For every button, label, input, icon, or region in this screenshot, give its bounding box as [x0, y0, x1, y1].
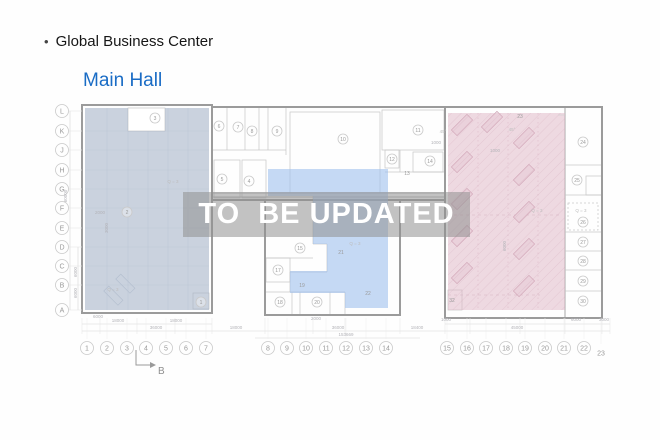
col-label-12: 12 — [340, 342, 353, 355]
room-number-1: 1 — [196, 297, 206, 307]
svg-text:F: F — [60, 206, 64, 213]
col-label-8: 8 — [262, 342, 275, 355]
row-label-A: A — [56, 304, 69, 317]
room-number-13: 13 — [404, 171, 410, 177]
section-marker-label: B — [158, 366, 165, 377]
dimension-label: 6000 — [571, 317, 582, 322]
svg-text:E: E — [60, 226, 65, 233]
dimension-label: 18000 — [112, 318, 125, 323]
svg-text:13: 13 — [362, 346, 370, 353]
area-label: Q = 3 — [575, 208, 587, 213]
room-number-20: 20 — [312, 297, 322, 307]
page-title: Global Business Center — [56, 33, 214, 50]
page-header: • Global Business Center — [44, 33, 213, 50]
svg-text:23: 23 — [597, 351, 605, 358]
room-number-24: 24 — [578, 137, 588, 147]
room-number-18: 18 — [275, 297, 285, 307]
watermark: TO BE UPDATED — [183, 192, 470, 237]
room-number-10: 10 — [338, 134, 348, 144]
col-label-18: 18 — [500, 342, 513, 355]
col-label-22: 22 — [578, 342, 591, 355]
svg-text:10: 10 — [340, 137, 346, 143]
svg-text:27: 27 — [580, 240, 586, 246]
svg-text:14: 14 — [382, 346, 390, 353]
room-number-6: 6 — [214, 121, 224, 131]
zone-middle — [268, 169, 388, 308]
room-number-15: 15 — [295, 243, 305, 253]
svg-text:3: 3 — [125, 346, 129, 353]
dimension-label: 6000 — [73, 287, 78, 298]
svg-text:10: 10 — [302, 346, 310, 353]
svg-text:15: 15 — [443, 346, 451, 353]
row-label-K: K — [56, 125, 69, 138]
room-number-21: 21 — [338, 250, 344, 256]
col-label-13: 13 — [360, 342, 373, 355]
dimension-label: 153669 — [338, 332, 354, 337]
col-label-5: 5 — [160, 342, 173, 355]
dimension-label: 2000 — [311, 316, 322, 321]
dimension-label: 18000 — [230, 325, 243, 330]
col-label-20: 20 — [539, 342, 552, 355]
svg-text:1: 1 — [85, 346, 89, 353]
svg-text:11: 11 — [415, 128, 420, 134]
room-number-25: 25 — [572, 175, 582, 185]
area-label: 45° — [509, 127, 516, 132]
svg-text:K: K — [60, 129, 65, 136]
col-label-10: 10 — [300, 342, 313, 355]
svg-text:26: 26 — [580, 220, 586, 226]
dimension-label: 6000 — [93, 314, 104, 319]
col-label-14: 14 — [380, 342, 393, 355]
dimension-label: 18400 — [411, 325, 424, 330]
svg-text:5: 5 — [164, 346, 168, 353]
room-number-9: 9 — [272, 126, 282, 136]
svg-text:D: D — [59, 245, 64, 252]
dimension-label: 3000 — [104, 222, 109, 233]
dimension-label: 3000 — [599, 317, 610, 322]
col-label-11: 11 — [320, 342, 333, 355]
svg-text:30: 30 — [580, 299, 586, 305]
svg-text:19: 19 — [521, 346, 529, 353]
watermark-text: TO BE UPDATED — [198, 198, 454, 231]
row-label-E: E — [56, 222, 69, 235]
col-label-15: 15 — [441, 342, 454, 355]
section-marker: B — [136, 350, 165, 377]
room-number-8: 8 — [247, 126, 257, 136]
hall-title: Main Hall — [83, 70, 162, 92]
col-label-17: 17 — [480, 342, 493, 355]
svg-text:H: H — [59, 168, 64, 175]
svg-text:2: 2 — [126, 210, 129, 216]
room-number-26: 26 — [578, 217, 588, 227]
room-number-29: 29 — [578, 276, 588, 286]
room-number-27: 27 — [578, 237, 588, 247]
row-label-F: F — [56, 202, 69, 215]
dimension-label: 36000 — [332, 325, 345, 330]
svg-text:22: 22 — [365, 291, 371, 297]
svg-text:13: 13 — [404, 171, 410, 177]
dimension-label: 60000 — [63, 189, 68, 202]
dimension-label: 6000 — [73, 266, 78, 277]
svg-text:C: C — [59, 264, 64, 271]
room-number-23: 23 — [517, 114, 523, 120]
svg-text:6: 6 — [218, 124, 221, 130]
col-label-3: 3 — [121, 342, 134, 355]
svg-text:12: 12 — [389, 157, 395, 163]
row-label-J: J — [56, 144, 69, 157]
svg-text:32: 32 — [449, 298, 455, 304]
svg-text:1: 1 — [200, 300, 203, 306]
svg-text:24: 24 — [580, 140, 586, 146]
dimension-label: 18000 — [170, 318, 183, 323]
area-label: Q = 3 — [349, 241, 361, 246]
dimension-label: 1000 — [431, 140, 442, 145]
row-label-C: C — [56, 260, 69, 273]
col-label-9: 9 — [281, 342, 294, 355]
room-number-2: 2 — [122, 207, 132, 217]
svg-text:20: 20 — [541, 346, 549, 353]
svg-text:A: A — [60, 308, 65, 315]
area-label: Q = 3 — [107, 287, 119, 292]
svg-text:B: B — [60, 283, 65, 290]
room-number-30: 30 — [578, 296, 588, 306]
svg-text:4: 4 — [144, 346, 148, 353]
svg-text:7: 7 — [204, 346, 208, 353]
dimension-label: 1000 — [441, 317, 452, 322]
svg-text:21: 21 — [560, 346, 568, 353]
svg-text:9: 9 — [285, 346, 289, 353]
room-number-7: 7 — [233, 122, 243, 132]
svg-text:3: 3 — [154, 116, 157, 122]
room-number-32: 32 — [449, 298, 455, 304]
svg-text:11: 11 — [322, 346, 329, 353]
dimension-label: 45000 — [511, 325, 524, 330]
col-label-21: 21 — [558, 342, 571, 355]
room-number-14: 14 — [425, 156, 435, 166]
svg-text:22: 22 — [580, 346, 588, 353]
col-label-7: 7 — [200, 342, 213, 355]
room-number-3: 3 — [150, 113, 160, 123]
dimension-label: 2000 — [95, 210, 106, 215]
col-label-16: 16 — [461, 342, 474, 355]
room-number-17: 17 — [273, 265, 283, 275]
svg-text:17: 17 — [275, 268, 281, 274]
svg-text:15: 15 — [297, 246, 303, 252]
svg-text:4: 4 — [248, 179, 251, 185]
row-label-H: H — [56, 164, 69, 177]
room-number-11: 11 — [413, 125, 423, 135]
svg-text:J: J — [60, 148, 64, 155]
svg-text:19: 19 — [299, 283, 305, 289]
floor-plan: B LKJHGFEDCBA123456789101112131415161718… — [0, 0, 660, 440]
svg-text:25: 25 — [574, 178, 580, 184]
svg-text:21: 21 — [338, 250, 344, 256]
svg-text:7: 7 — [237, 125, 240, 131]
bullet-icon: • — [44, 34, 49, 49]
svg-text:18: 18 — [502, 346, 510, 353]
row-label-D: D — [56, 241, 69, 254]
dimension-label: 6000 — [502, 240, 507, 251]
svg-text:14: 14 — [427, 159, 433, 165]
room-number-19: 19 — [299, 283, 305, 289]
col-label-6: 6 — [180, 342, 193, 355]
room-number-4: 4 — [244, 176, 254, 186]
col-label-1: 1 — [81, 342, 94, 355]
svg-text:18: 18 — [277, 300, 283, 306]
svg-text:8: 8 — [251, 129, 254, 135]
col-label-19: 19 — [519, 342, 532, 355]
dimension-label: 36000 — [150, 325, 163, 330]
col-label-4: 4 — [140, 342, 153, 355]
svg-text:9: 9 — [276, 129, 279, 135]
svg-text:20: 20 — [314, 300, 320, 306]
svg-text:5: 5 — [221, 177, 224, 183]
row-label-L: L — [56, 105, 69, 118]
svg-text:17: 17 — [482, 346, 490, 353]
svg-text:2: 2 — [105, 346, 109, 353]
area-label: Q = 3 — [167, 179, 179, 184]
col-label-2: 2 — [101, 342, 114, 355]
area-label: Q = 3 — [531, 208, 543, 213]
room-number-12: 12 — [387, 154, 397, 164]
svg-text:8: 8 — [266, 346, 270, 353]
svg-text:28: 28 — [580, 259, 586, 265]
room-number-28: 28 — [578, 256, 588, 266]
svg-text:29: 29 — [580, 279, 586, 285]
svg-text:16: 16 — [463, 346, 471, 353]
dimension-label: 1000 — [490, 148, 501, 153]
svg-text:12: 12 — [342, 346, 350, 353]
room-number-5: 5 — [217, 174, 227, 184]
col-label-23: 23 — [597, 351, 605, 358]
row-label-B: B — [56, 279, 69, 292]
svg-text:L: L — [60, 109, 64, 116]
area-label: 45° — [440, 129, 447, 134]
svg-text:6: 6 — [184, 346, 188, 353]
svg-text:23: 23 — [517, 114, 523, 120]
room-number-22: 22 — [365, 291, 371, 297]
